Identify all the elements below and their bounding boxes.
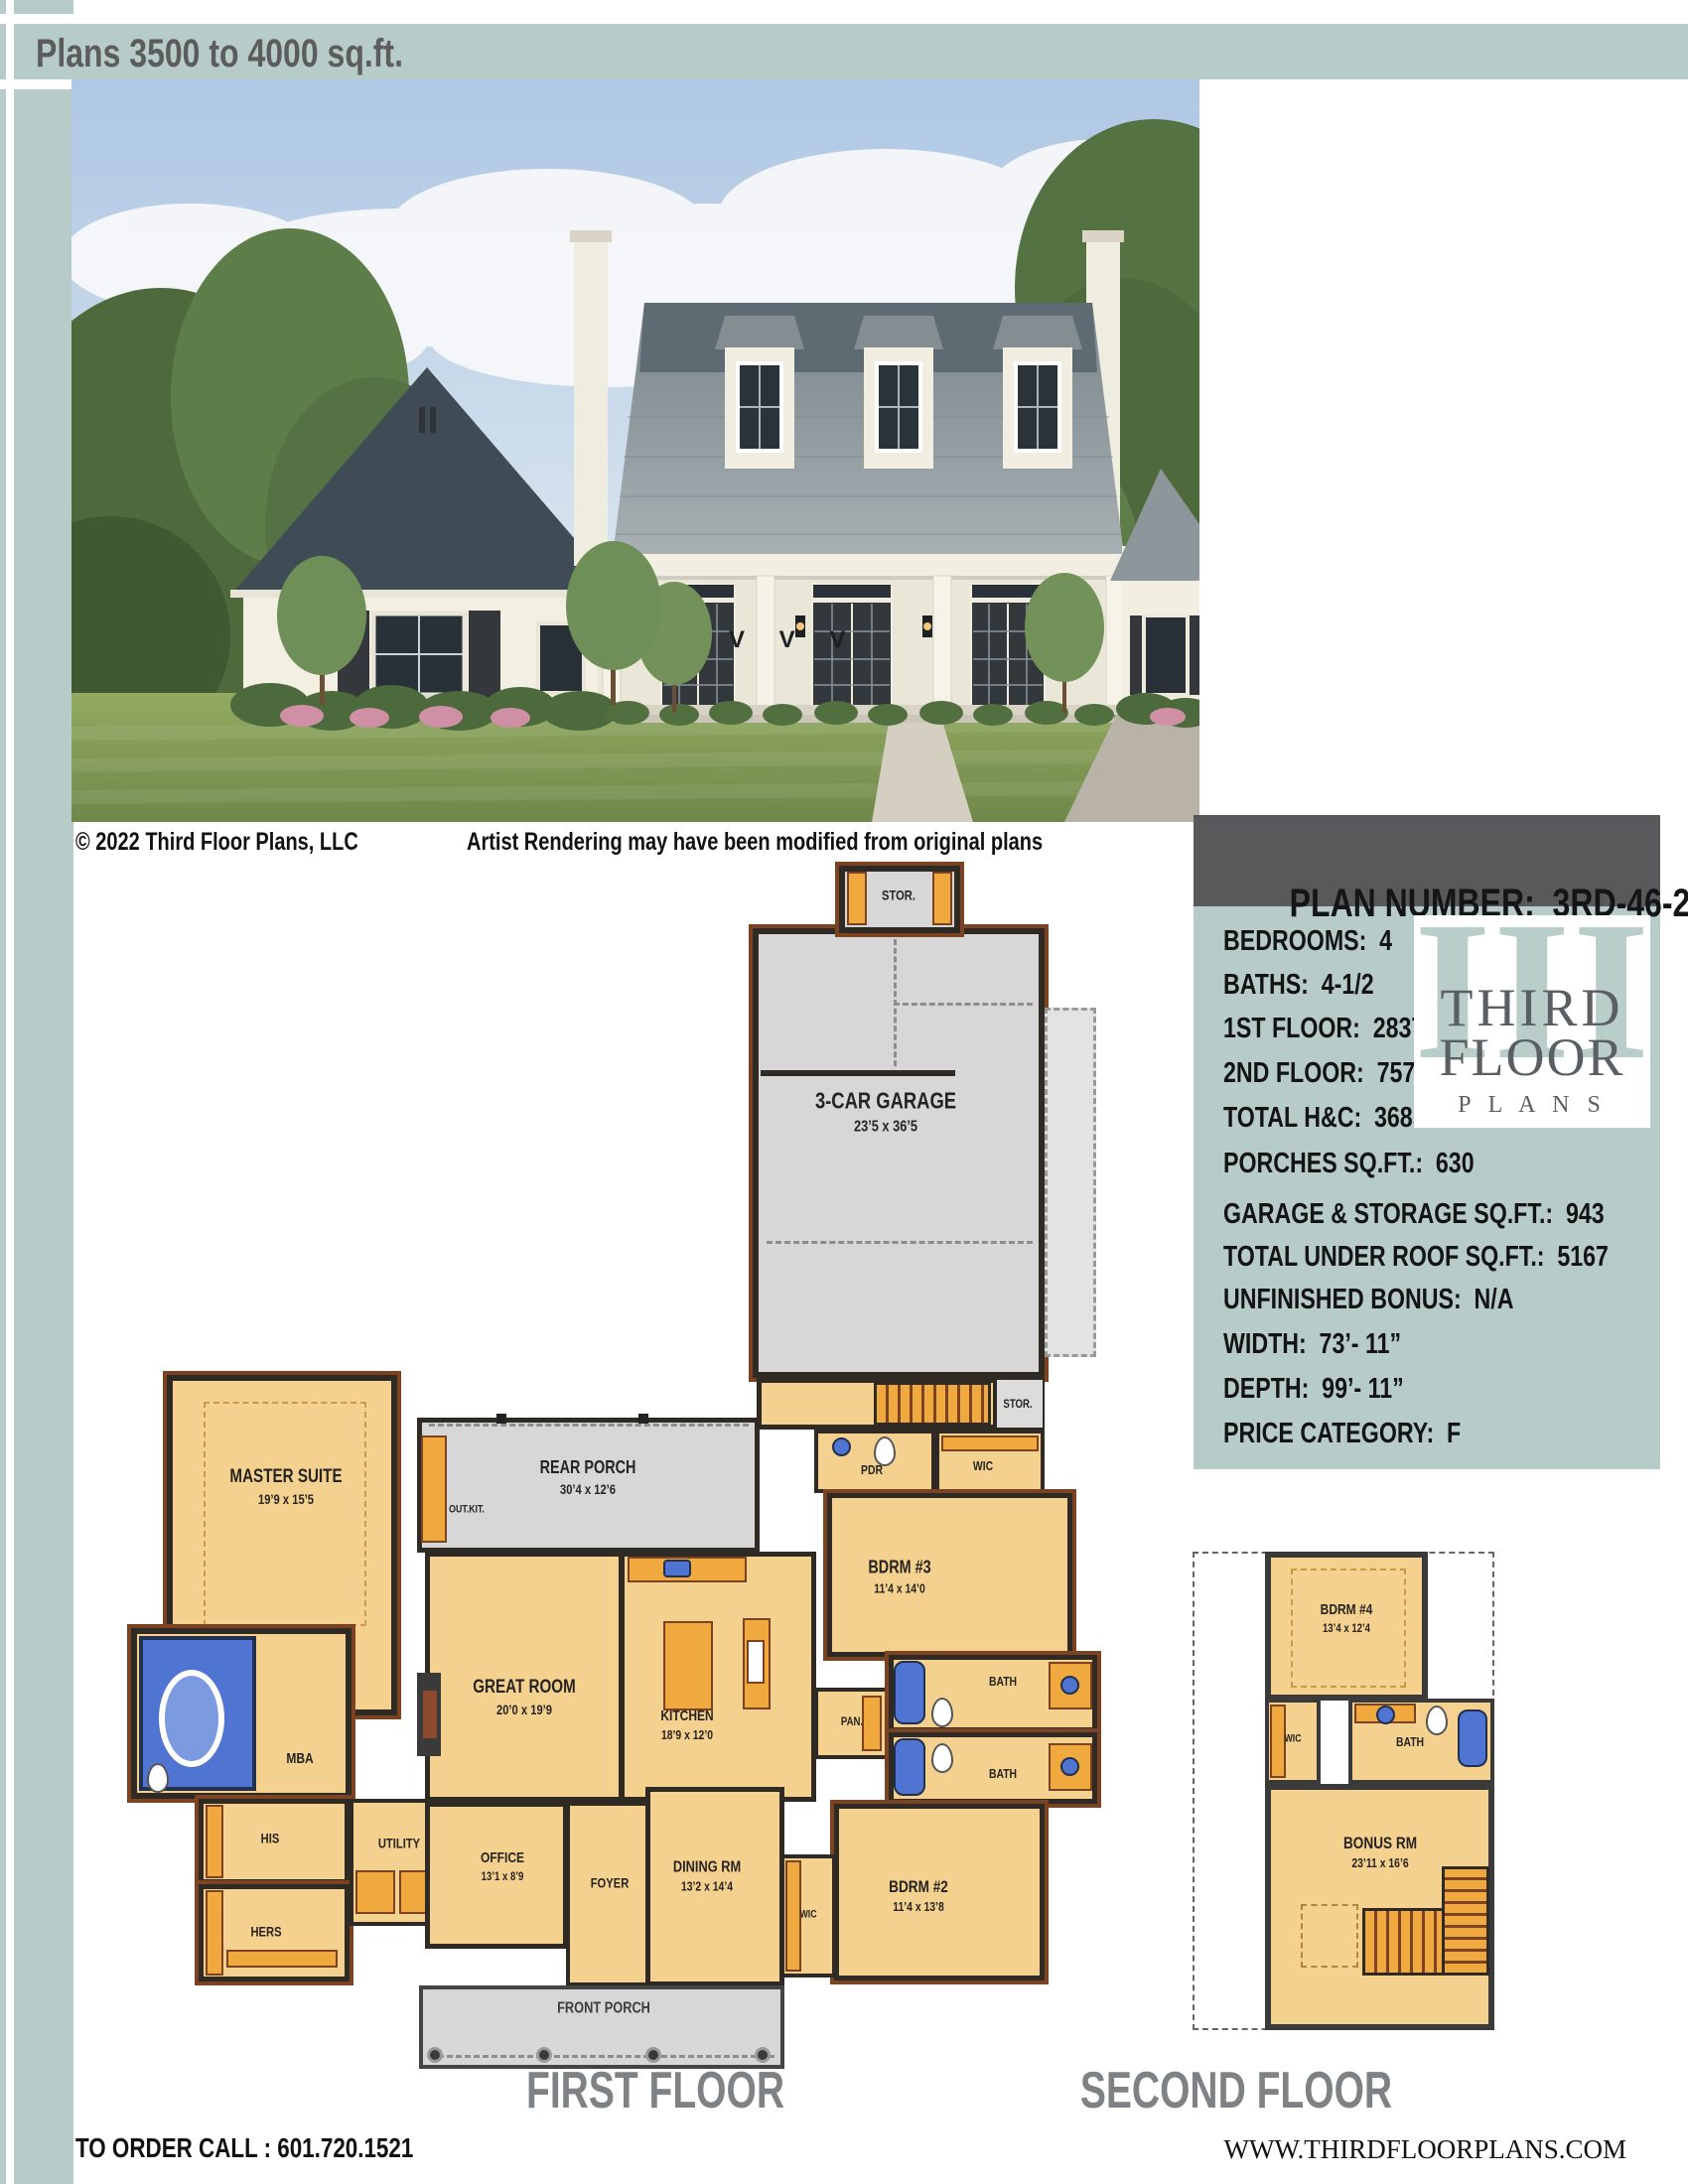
- storage-jamb-right: [932, 872, 952, 925]
- website-url: WWW.THIRDFLOORPLANS.COM: [1223, 2134, 1626, 2165]
- label-hers: HERS: [247, 1924, 286, 1941]
- stairs-first-floor: [874, 1382, 991, 1426]
- label-dining: DINING RM13’2 x 14’4: [664, 1858, 749, 1895]
- bonus-dashed-stairs: [1301, 1904, 1358, 1968]
- stairs-second-floor: [1362, 1908, 1448, 1976]
- stat-garage-storage: GARAGE & STORAGE SQ.FT.:943: [1223, 1198, 1688, 1231]
- porch-column-1: [427, 2047, 443, 2063]
- label-wic3: WIC: [970, 1458, 995, 1474]
- front-porch-edge-dash: [429, 2055, 774, 2058]
- master-tray-ceiling: [204, 1402, 366, 1626]
- header-band: Plans 3500 to 4000 sq.ft.: [14, 24, 1688, 79]
- left-thin-stripe: [0, 0, 6, 2184]
- left-chimney: [574, 238, 608, 566]
- powder-sink: [832, 1437, 851, 1456]
- left-thin-stripe-gap-1: [0, 14, 6, 24]
- fireplace: [417, 1673, 441, 1756]
- second-floor-caption: SECOND FLOOR: [1029, 2061, 1445, 2120]
- label-wic-2f: WIC: [1282, 1732, 1303, 1745]
- stat-bedrooms: BEDROOMS:4: [1223, 925, 1435, 958]
- freestanding-tub: [159, 1670, 224, 1767]
- label-pdr: PDR: [858, 1462, 885, 1478]
- porch-post-2: [638, 1414, 648, 1424]
- house-rendering-photo: V V V: [71, 79, 1199, 822]
- hers-shelving-bottom: [226, 1950, 338, 1968]
- logo-word-floor: FLOOR: [1414, 1026, 1650, 1088]
- label-stor-top: STOR.: [878, 887, 920, 904]
- foyer-room: [566, 1802, 657, 1986]
- order-phone: TO ORDER CALL : 601.720.1521: [75, 2132, 497, 2164]
- stat-price-category: PRICE CATEGORY:F: [1223, 1418, 1520, 1450]
- label-his: HIS: [258, 1831, 281, 1847]
- label-bedroom-3: BDRM #311’4 x 14’0: [860, 1557, 938, 1595]
- plan-number-header: PLAN NUMBER: 3RD-46-22: [1194, 815, 1660, 906]
- right-shutter: [469, 611, 500, 698]
- page: { "header": { "title": "Plans 3500 to 40…: [0, 0, 1688, 2184]
- hers-shelving-left: [206, 1890, 223, 1976]
- kitchen-island: [663, 1621, 713, 1710]
- third-floor-plans-logo: III THIRD FLOOR P L A N S: [1414, 915, 1650, 1128]
- first-floor-caption: FIRST FLOOR: [484, 2061, 828, 2120]
- label-bath-2f: BATH: [1392, 1734, 1427, 1750]
- stat-baths: BATHS:4-1/2: [1223, 969, 1412, 1002]
- stairs-landing: [1442, 1866, 1489, 1976]
- watermark-v-marks: V V V: [729, 626, 859, 653]
- left-thin-stripe-gap-2: [0, 79, 6, 89]
- garage-block: [753, 928, 1045, 1378]
- label-out-kit: OUT.KIT.: [445, 1503, 490, 1516]
- stat-total-under-roof: TOTAL UNDER ROOF SQ.FT.:5167: [1223, 1241, 1688, 1274]
- stat-width: WIDTH:73’- 11”: [1223, 1328, 1446, 1361]
- stat-depth: DEPTH:99’- 11”: [1223, 1373, 1449, 1406]
- label-bedroom-4: BDRM #413’4 x 12’4: [1314, 1601, 1379, 1635]
- bath-2f-toilet: [1426, 1706, 1448, 1735]
- master-toilet: [147, 1763, 169, 1793]
- porch-post-1: [496, 1414, 506, 1424]
- bath-2f-tub: [1458, 1709, 1487, 1767]
- label-utility: UTILITY: [373, 1836, 426, 1852]
- photo-credit: © 2022 Third Floor Plans, LLC: [75, 828, 429, 857]
- left-column: [14, 89, 73, 2184]
- label-bedroom-2: BDRM #211’4 x 13’8: [882, 1877, 956, 1915]
- label-stor-stairs: STOR.: [1000, 1397, 1036, 1411]
- garage-side-strip: [1045, 1008, 1096, 1357]
- bath-lower-toilet: [931, 1743, 953, 1773]
- label-foyer: FOYER: [586, 1875, 633, 1892]
- bath-lower-sink: [1060, 1757, 1079, 1776]
- garage-dash-line-2: [894, 1003, 1033, 1006]
- wic3-shelving: [941, 1435, 1039, 1451]
- label-garage: 3-CAR GARAGE23’5 x 36’5: [797, 1088, 974, 1137]
- powder-room: [814, 1430, 935, 1493]
- garage-dash-line: [767, 1241, 1033, 1244]
- bath-upper-tub: [894, 1661, 925, 1724]
- bath-2f-sink: [1376, 1706, 1395, 1724]
- label-rear-porch: REAR PORCH30’4 x 12’6: [527, 1457, 647, 1497]
- page-title: Plans 3500 to 4000 sq.ft.: [14, 24, 1688, 76]
- bath-lower-tub: [894, 1738, 925, 1796]
- label-office: OFFICE13’1 x 8’9: [476, 1849, 530, 1883]
- photo-note: Artist Rendering may have been modified …: [467, 828, 1187, 857]
- label-great-room: GREAT ROOM20’0 x 19’9: [460, 1677, 588, 1718]
- outdoor-kitchen-counter: [421, 1435, 447, 1543]
- label-bonus-room: BONUS RM23’11 x 16’6: [1335, 1834, 1427, 1871]
- washer: [355, 1870, 395, 1914]
- label-bath-lower: BATH: [985, 1766, 1020, 1782]
- bath-upper-sink: [1060, 1676, 1079, 1695]
- range: [747, 1640, 765, 1684]
- label-front-porch: FRONT PORCH: [545, 1998, 661, 2017]
- label-mba: MBA: [283, 1750, 317, 1768]
- label-master-suite: MASTER SUITE19’9 x 15’5: [215, 1466, 355, 1508]
- bath-upper-toilet: [931, 1698, 953, 1727]
- stat-porches: PORCHES SQ.FT.:630: [1223, 1148, 1537, 1180]
- rear-porch-open-edge: [429, 1424, 749, 1427]
- stat-unfinished-bonus: UNFINISHED BONUS:N/A: [1223, 1284, 1587, 1316]
- garage-interior-wall: [761, 1070, 955, 1076]
- label-pantry: PAN.: [838, 1714, 866, 1728]
- his-shelving: [206, 1805, 223, 1878]
- kitchen-sink: [663, 1560, 691, 1577]
- logo-word-plans: P L A N S: [1414, 1092, 1650, 1119]
- dormers: [715, 316, 1082, 469]
- storage-jamb-left: [847, 872, 867, 925]
- label-bath-upper: BATH: [985, 1674, 1020, 1690]
- kitchen-room: [620, 1552, 816, 1802]
- corner-square: [14, 0, 73, 14]
- label-wic2: WIC: [797, 1908, 818, 1921]
- label-kitchen: KITCHEN18’9 x 12’0: [654, 1707, 721, 1743]
